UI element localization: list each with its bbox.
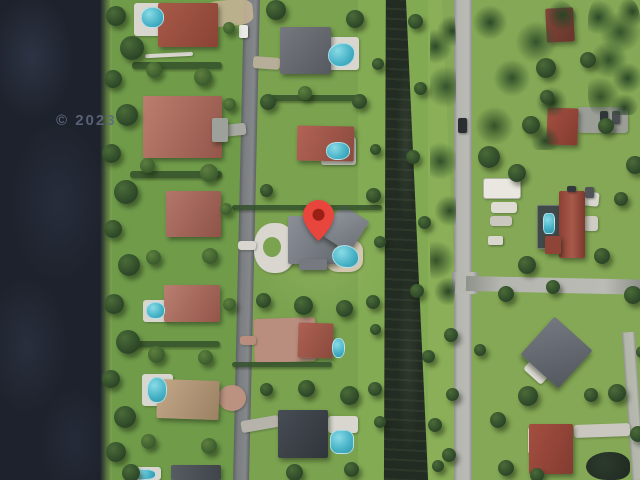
tree: [260, 184, 273, 197]
shed: [490, 216, 512, 226]
car: [567, 186, 576, 192]
car: [239, 25, 248, 38]
house: [164, 285, 220, 322]
palm-tree: [201, 438, 217, 454]
palm-tree: [141, 434, 156, 449]
swimming-pool: [326, 142, 350, 160]
tree: [530, 468, 544, 480]
palm-tree: [223, 98, 236, 111]
tree: [298, 380, 315, 397]
tree: [102, 370, 120, 388]
tree: [346, 10, 364, 28]
tree: [344, 462, 359, 477]
tree: [286, 464, 303, 480]
house: [166, 191, 221, 237]
tree: [598, 118, 614, 134]
tree: [536, 58, 556, 78]
driveway: [238, 241, 256, 250]
tree: [518, 256, 536, 274]
tree: [256, 293, 271, 308]
swimming-pool: [146, 302, 165, 319]
house-wing: [212, 118, 228, 142]
pond: [586, 452, 630, 480]
tree: [626, 156, 640, 174]
palm-tree: [146, 62, 162, 78]
tree: [498, 460, 514, 476]
forest: [430, 0, 456, 310]
house: [297, 322, 333, 358]
tree: [444, 328, 458, 342]
tree: [106, 442, 126, 462]
house-wing: [545, 236, 561, 254]
house: [520, 316, 592, 388]
palm-tree: [148, 346, 165, 363]
swimming-pool: [332, 245, 359, 268]
hedge: [266, 95, 359, 101]
tree: [352, 94, 367, 109]
palm-tree: [202, 248, 218, 264]
shrub: [414, 82, 427, 95]
shrub: [374, 416, 386, 428]
lake: [0, 0, 106, 480]
map-watermark: © 2023: [56, 112, 117, 129]
canal: [382, 0, 430, 480]
tree: [106, 6, 126, 26]
palm-tree: [140, 158, 155, 173]
palm-tree: [198, 350, 213, 365]
tree: [546, 280, 560, 294]
palm-tree: [194, 68, 212, 86]
house: [559, 191, 585, 258]
palm-tree: [298, 86, 312, 100]
shrub: [432, 460, 444, 472]
tree: [120, 36, 144, 60]
house: [278, 410, 328, 458]
hedge: [130, 341, 220, 347]
tree: [540, 90, 554, 104]
shrub: [372, 58, 384, 70]
tree: [340, 386, 359, 405]
palm-tree: [223, 298, 236, 311]
tree: [336, 300, 353, 317]
tree: [116, 330, 140, 354]
shrub: [374, 236, 386, 248]
driveway: [240, 336, 256, 345]
swimming-pool: [141, 7, 164, 28]
satellite-map[interactable]: © 2023: [0, 0, 640, 480]
tree: [614, 192, 628, 206]
tree: [594, 248, 610, 264]
tree: [608, 384, 626, 402]
tree: [102, 144, 121, 163]
tree: [474, 344, 486, 356]
shrub: [428, 418, 442, 432]
shrub: [370, 324, 381, 335]
car: [585, 187, 594, 198]
tree: [118, 254, 140, 276]
location-pin-icon[interactable]: [300, 199, 337, 242]
tree: [580, 52, 596, 68]
pin-hole: [313, 209, 325, 221]
house: [158, 3, 218, 47]
house: [143, 96, 222, 158]
tree: [442, 448, 456, 462]
palm-tree: [220, 203, 232, 215]
palm-tree: [146, 250, 161, 265]
driveway: [253, 56, 281, 70]
tree: [294, 296, 313, 315]
shrub: [406, 150, 420, 164]
driveway-island: [263, 237, 281, 257]
house: [171, 465, 221, 480]
tree: [260, 94, 276, 110]
tree: [508, 164, 526, 182]
cul-de-sac: [218, 385, 246, 411]
tree: [584, 388, 598, 402]
shrub: [410, 284, 424, 298]
trailer: [491, 202, 517, 213]
shrub: [370, 144, 381, 155]
tree: [104, 220, 122, 238]
tree: [478, 146, 500, 168]
swimming-pool: [330, 430, 354, 454]
walkway: [145, 52, 193, 59]
palm-tree: [200, 164, 218, 182]
house: [280, 27, 331, 74]
car: [488, 236, 503, 245]
swimming-pool: [147, 377, 167, 403]
tree: [498, 286, 514, 302]
shed: [584, 216, 598, 231]
shrub: [408, 14, 423, 29]
tree: [630, 426, 640, 442]
hedge: [232, 362, 332, 367]
tree: [104, 294, 124, 314]
tree: [366, 188, 381, 203]
pin-house-entry: [299, 259, 327, 270]
shrub: [422, 350, 435, 363]
shrub: [418, 216, 431, 229]
tree: [368, 382, 382, 396]
tree: [522, 116, 540, 134]
tree: [104, 70, 122, 88]
tree: [490, 412, 506, 428]
tree: [114, 406, 136, 428]
tree: [366, 295, 380, 309]
swimming-pool: [543, 213, 555, 234]
house: [529, 424, 573, 474]
tree: [446, 388, 459, 401]
tree: [518, 386, 538, 406]
tree: [116, 104, 138, 126]
tree: [624, 286, 640, 304]
swimming-pool: [332, 338, 345, 358]
driveway: [574, 423, 630, 438]
tree: [260, 383, 273, 396]
tree: [114, 180, 138, 204]
car: [458, 118, 467, 133]
palm-tree: [223, 22, 235, 34]
tree: [122, 464, 140, 480]
tree: [266, 0, 286, 20]
